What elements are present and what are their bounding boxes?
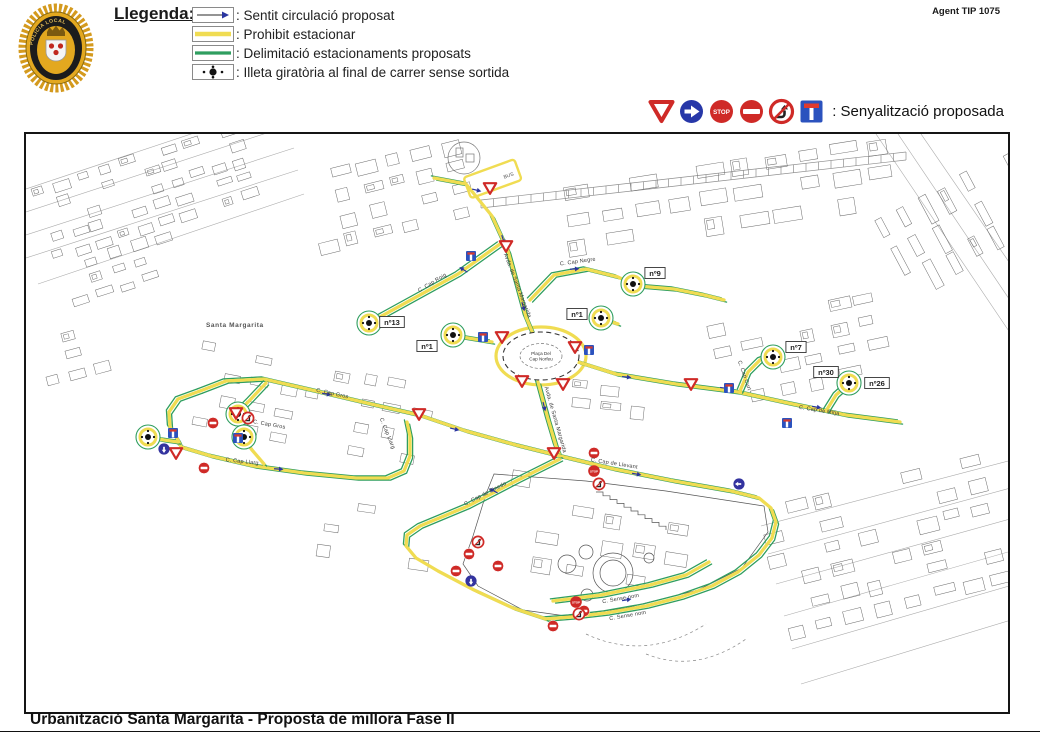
street-number-label: nº30 [814,367,839,378]
svg-text:nº26: nº26 [869,379,885,388]
street-number-label: nº7 [786,342,806,353]
map-sign-no-right-turn-icon [593,478,604,489]
yellow-line-icon [192,26,234,42]
map-sign-mandatory-icon [158,443,169,454]
map-sign-no-right-turn-icon [573,608,584,619]
svg-text:BUS: BUS [503,171,515,180]
svg-text:Plaça Del: Plaça Del [531,351,551,356]
islet-roundabout-marker [357,311,381,335]
legend-item-label: : Illeta giratòria al final de carrer se… [236,65,509,80]
legend-item-label: : Prohibit estacionar [236,27,355,42]
map-sign-no-entry-icon [463,548,474,559]
street-number-label: nº9 [645,268,665,279]
map-sign-stop-icon: STOP [588,465,600,477]
map-sign-mandatory-icon [465,575,476,586]
mandatory-right-icon [678,98,705,125]
islet-roundabout-marker [589,306,613,330]
direction-arrow-icon [192,7,234,23]
signage-label: : Senyalització proposada [832,103,1004,120]
map-sign-dead-end-icon [233,433,243,443]
divided-road [481,152,906,208]
legend-item: : Prohibit estacionar [192,25,612,43]
area-label: Santa Margarita [206,322,264,329]
street-number-label: nº26 [865,378,890,389]
svg-text:nº30: nº30 [818,368,834,377]
svg-text:nº1: nº1 [571,310,583,319]
yield-icon [648,98,675,125]
map-sign-mandatory-icon [733,478,744,489]
roundabout-island-icon [192,64,234,80]
street-label: C. Cap Gros [316,388,349,401]
street-label: C. Cap de Pinedo [463,481,507,508]
svg-text:Cap Norfeu: Cap Norfeu [529,357,553,362]
map-sign-yield-icon [170,448,182,459]
no-entry-icon [738,98,765,125]
map: BUSPlaça DelCap NorfeuSTOPSTOPC. Cap Roi… [24,132,1010,714]
bottom-rule [0,731,1040,732]
signage-icons: STOP [648,98,825,125]
map-sign-no-entry-icon [492,560,503,571]
svg-text:STOP: STOP [590,469,598,473]
map-sign-yield-icon [516,376,528,387]
map-sign-no-entry-icon [450,565,461,576]
map-sign-dead-end-icon [478,332,488,342]
proposed-routes [151,176,902,621]
street-label: Avda. de Santa Margarida [502,253,532,320]
svg-text:STOP: STOP [713,109,730,116]
map-sign-dead-end-icon [782,418,792,428]
map-sign-yield-icon [557,379,569,390]
plan-document: POLICIA LOCAL Llegenda: : Sentit circula… [0,0,1040,735]
street-label: C. Cap Negre [560,257,597,268]
street-labels: C. Cap RoigC. Cap NegreAvda. de Santa Ma… [225,253,840,623]
map-sign-dead-end-icon [584,345,594,355]
svg-text:STOP: STOP [572,600,580,604]
map-sign-no-right-turn-icon [472,536,483,547]
signage-row: STOP : Senyalització proposada [648,98,1004,125]
svg-text:nº7: nº7 [790,343,802,352]
svg-text:nº13: nº13 [384,318,400,327]
street-number-label: nº1 [567,309,587,320]
existing-roundabout [448,142,480,174]
map-sign-yield-icon [496,332,508,343]
map-sign-no-entry-icon [198,462,209,473]
map-sign-dead-end-icon [168,428,178,438]
map-sign-no-entry-icon [547,620,558,631]
legend: Llegenda: : Sentit circulació proposat: … [114,4,194,26]
legend-title: Llegenda: [114,4,194,24]
islet-roundabout-marker [441,323,465,347]
document-title: Urbanització Santa Margarita - Proposta … [30,711,455,729]
islet-roundabout-marker [621,272,645,296]
building-blocks [30,134,1008,641]
map-signs: STOPSTOP [158,183,792,631]
map-canvas: BUSPlaça DelCap NorfeuSTOPSTOPC. Cap Roi… [26,134,1008,712]
green-line-icon [192,45,234,61]
map-sign-dead-end-icon [724,383,734,393]
map-sign-dead-end-icon [466,251,476,261]
islet-roundabout-marker [837,371,861,395]
plaza: Plaça DelCap Norfeu [503,332,579,380]
islet-roundabout-marker [761,345,785,369]
central-block-outlines [463,474,768,661]
legend-item-label: : Sentit circulació proposat [236,8,394,23]
no-right-turn-icon [768,98,795,125]
street-number-label: nº13 [380,317,405,328]
map-sign-stop-icon: STOP [570,596,582,608]
legend-items: : Sentit circulació proposat: Prohibit e… [192,6,612,82]
street-number-label: nº1 [417,341,437,352]
legend-item: : Illeta giratòria al final de carrer se… [192,63,612,81]
agent-reference: Agent TIP 1075 [932,6,1000,17]
legend-item: : Delimitació estacionaments proposats [192,44,612,62]
svg-text:nº1: nº1 [421,342,433,351]
map-sign-no-entry-icon [207,417,218,428]
legend-item-label: : Delimitació estacionaments proposats [236,46,471,61]
legend-item: : Sentit circulació proposat [192,6,612,24]
stop-icon: STOP [708,98,735,125]
map-sign-yield-icon [500,241,512,252]
police-badge-logo: POLICIA LOCAL [16,2,96,94]
islet-roundabout-marker [136,425,160,449]
dead-end-icon [798,98,825,125]
svg-text:nº9: nº9 [649,269,661,278]
map-sign-no-right-turn-icon [242,412,253,423]
